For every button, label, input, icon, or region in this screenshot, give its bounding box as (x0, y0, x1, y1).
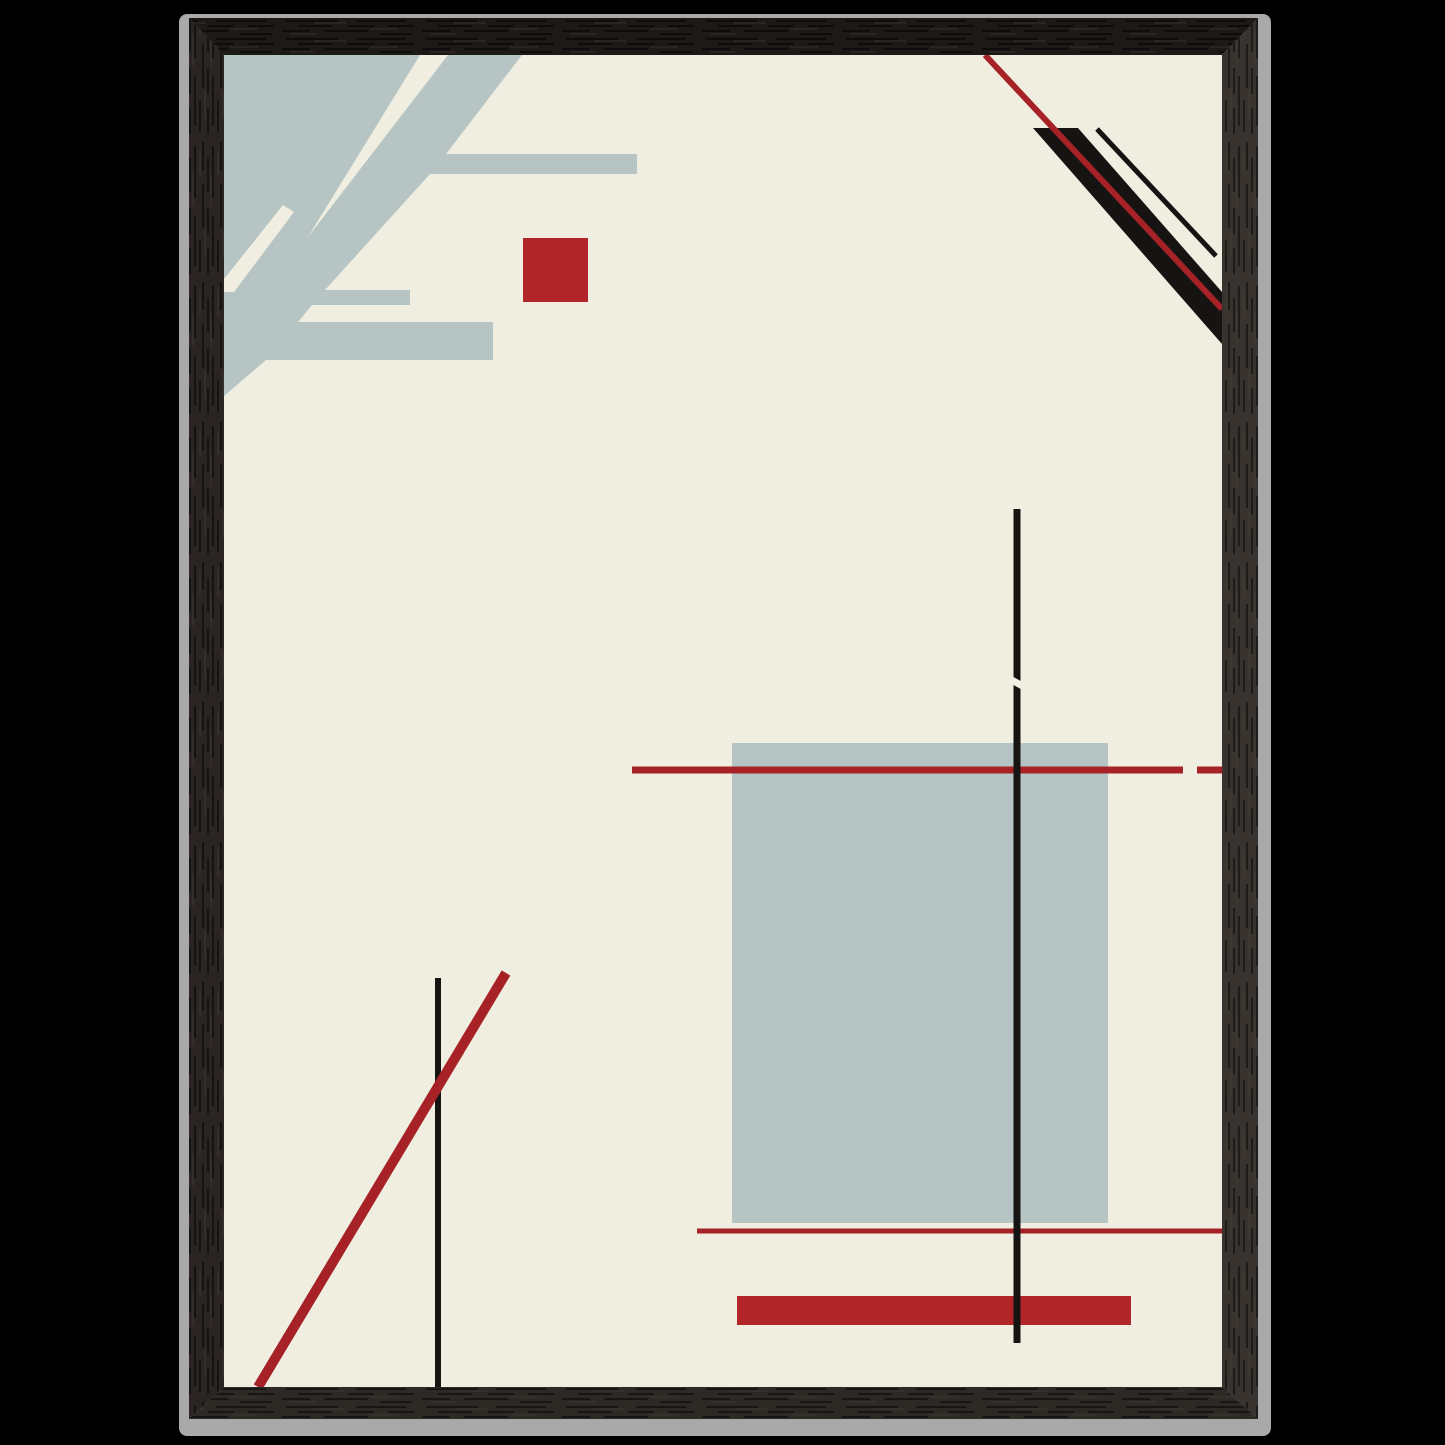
product-photo-framed-poster (0, 0, 1445, 1445)
frame-bottom-rail-grain (189, 1387, 1258, 1419)
blue-rectangle (732, 743, 1108, 1223)
frame-top-rail-grain (189, 18, 1258, 55)
red-bar (737, 1296, 1131, 1325)
framed-abstract-print (0, 0, 1445, 1445)
red-square (523, 238, 588, 302)
frame-right-rail-grain (1222, 18, 1258, 1419)
frame-left-rail-grain (189, 18, 224, 1419)
artwork (224, 55, 1222, 1387)
